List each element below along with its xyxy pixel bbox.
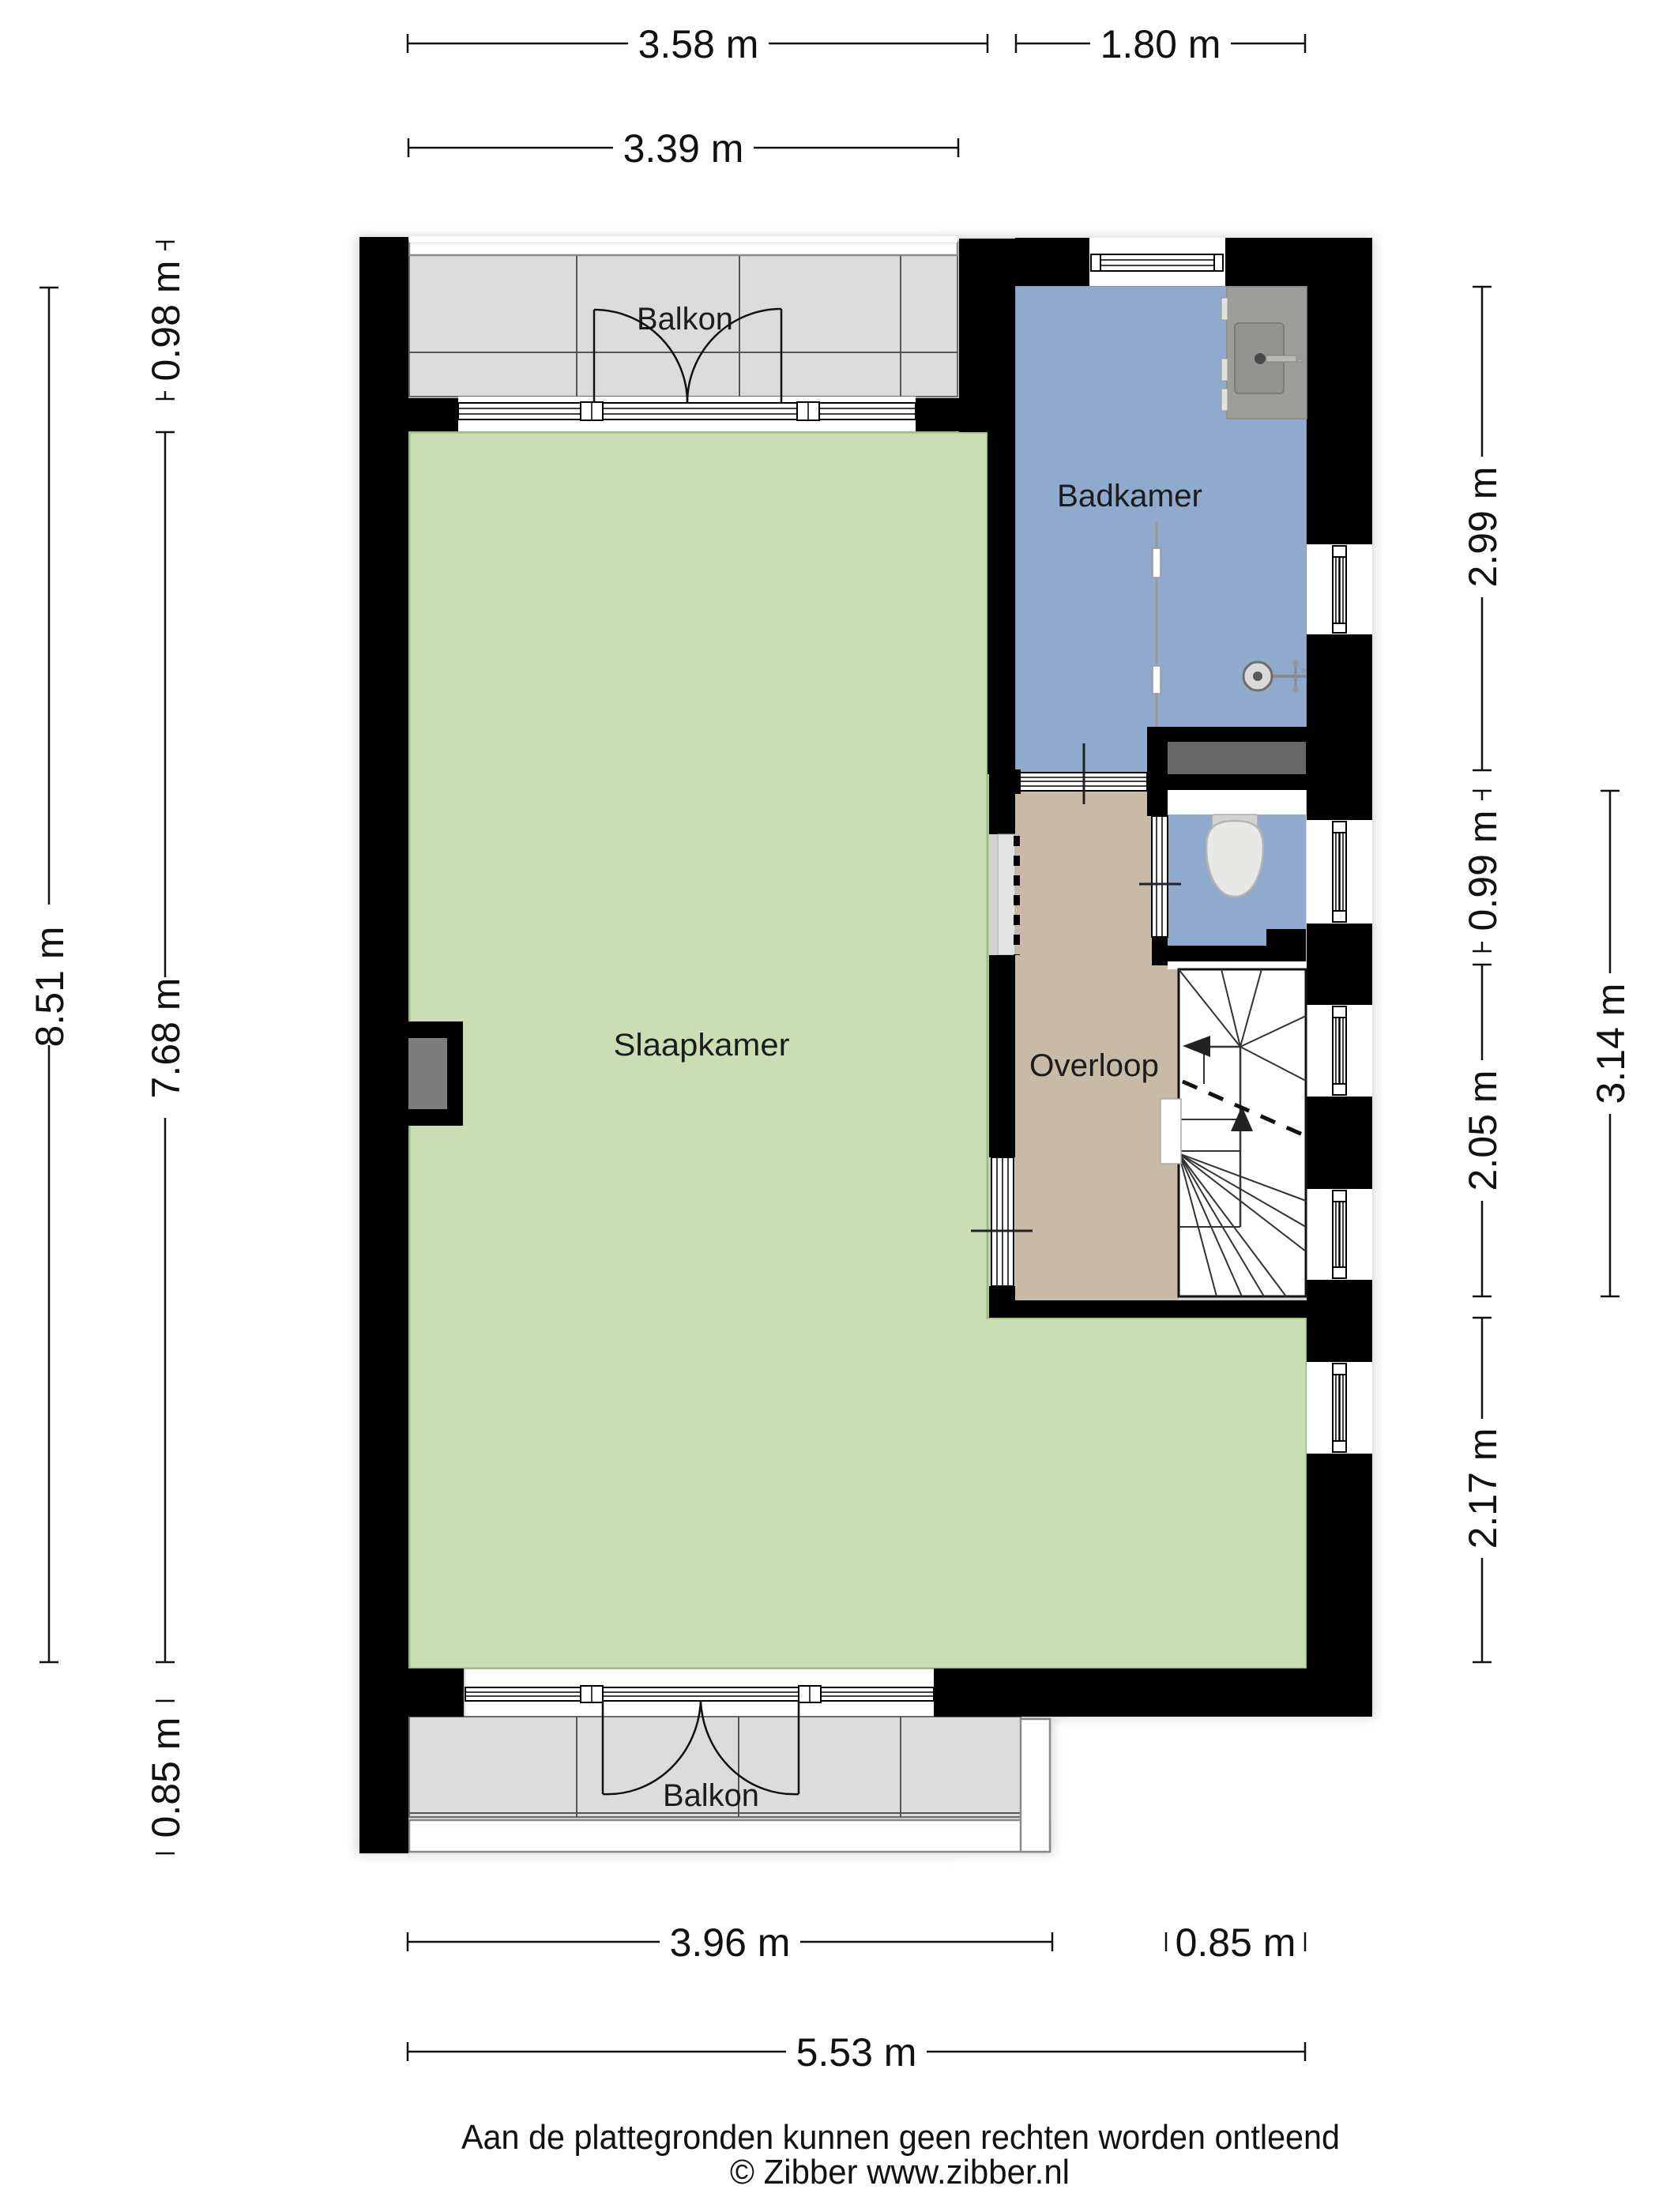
svg-text:2.17 m: 2.17 m	[1461, 1428, 1505, 1549]
svg-text:Overloop: Overloop	[1029, 1048, 1159, 1083]
svg-text:Balkon: Balkon	[637, 302, 733, 337]
svg-text:0.85 m: 0.85 m	[144, 1717, 188, 1838]
svg-text:0.85 m: 0.85 m	[1176, 1920, 1296, 1965]
svg-text:3.96 m: 3.96 m	[670, 1920, 791, 1965]
svg-text:2.99 m: 2.99 m	[1461, 467, 1505, 588]
svg-text:7.68 m: 7.68 m	[144, 978, 188, 1099]
svg-text:Badkamer: Badkamer	[1057, 479, 1202, 513]
svg-text:3.58 m: 3.58 m	[638, 22, 759, 66]
svg-text:0.99 m: 0.99 m	[1461, 811, 1505, 931]
svg-text:Balkon: Balkon	[663, 1778, 759, 1813]
svg-text:Aan de plattegronden kunnen ge: Aan de plattegronden kunnen geen rechten…	[461, 2118, 1340, 2157]
svg-text:1.80 m: 1.80 m	[1100, 22, 1221, 66]
svg-text:3.14 m: 3.14 m	[1589, 984, 1633, 1104]
svg-text:0.98 m: 0.98 m	[144, 261, 188, 382]
svg-text:5.53 m: 5.53 m	[796, 2030, 917, 2075]
svg-text:2.05 m: 2.05 m	[1461, 1070, 1505, 1191]
svg-text:8.51 m: 8.51 m	[28, 927, 72, 1048]
svg-text:© Zibber www.zibber.nl: © Zibber www.zibber.nl	[730, 2153, 1070, 2191]
svg-text:3.39 m: 3.39 m	[623, 126, 744, 171]
svg-text:Slaapkamer: Slaapkamer	[614, 1028, 790, 1063]
